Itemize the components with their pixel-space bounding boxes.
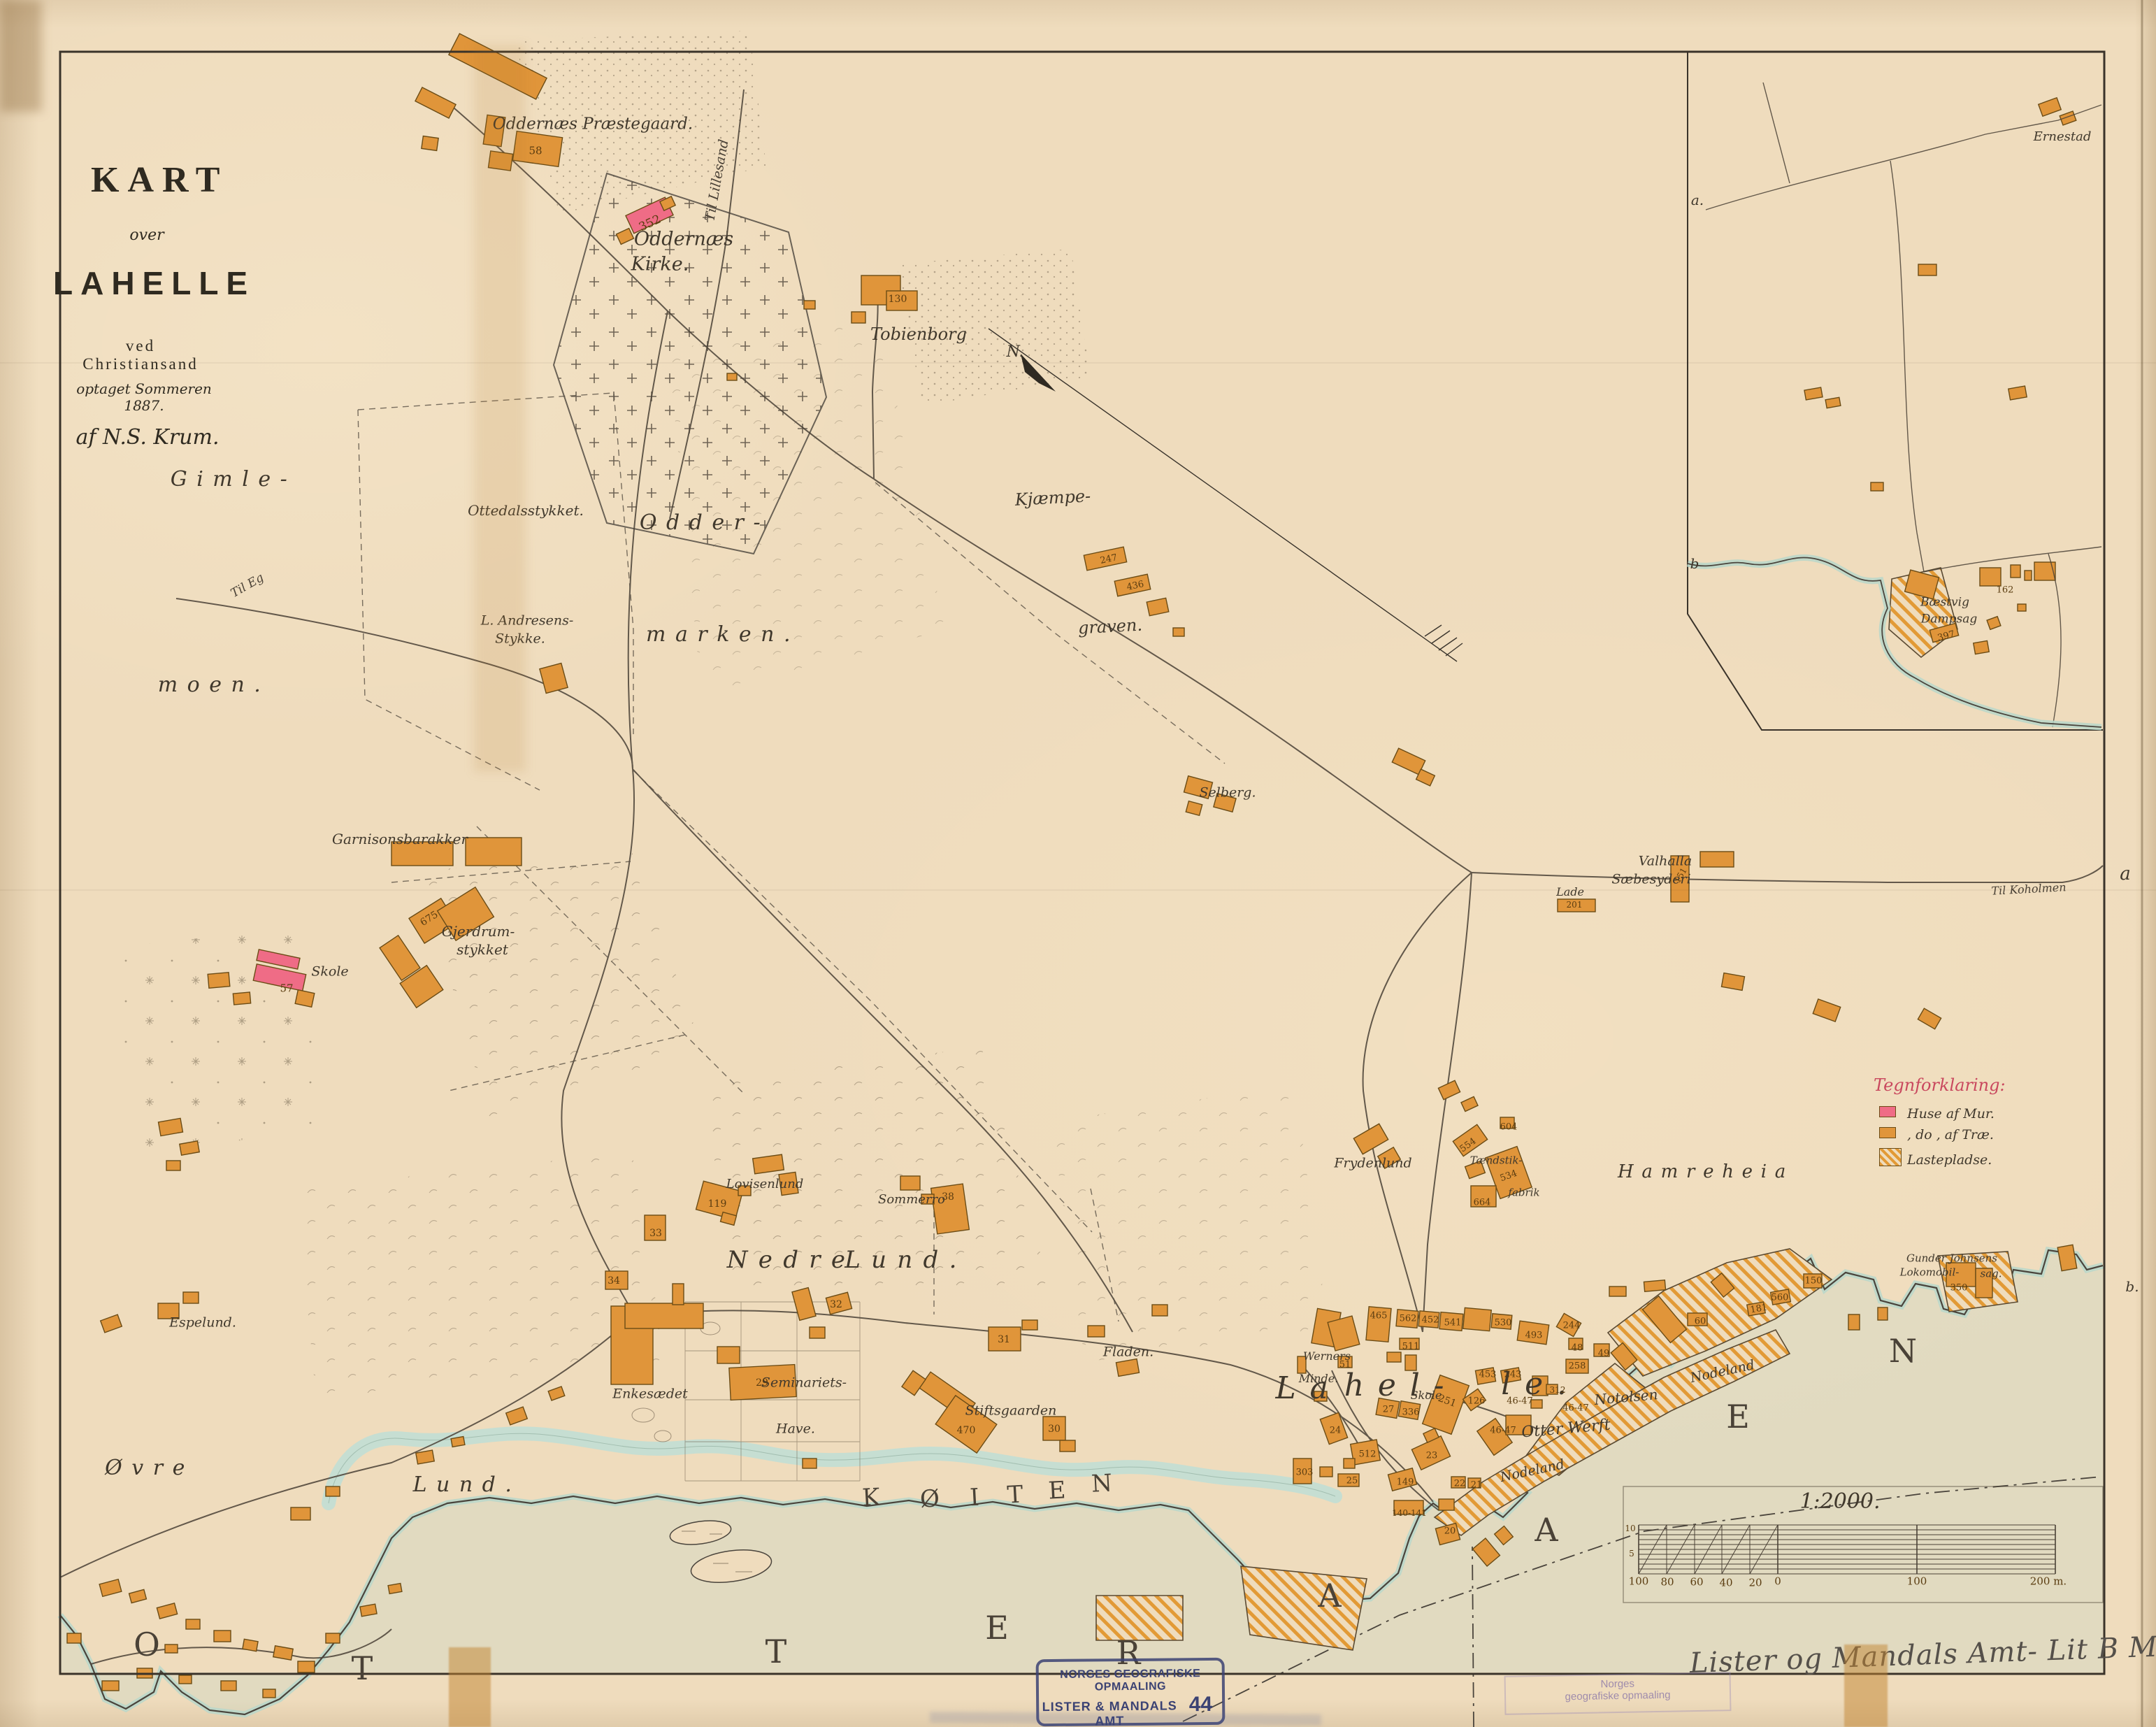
building-number: 33: [649, 1228, 662, 1238]
building-wood: [157, 1603, 177, 1619]
building-wood: [186, 1619, 200, 1629]
building-number: 560: [1771, 1294, 1789, 1303]
map-label: Tændstik-: [1470, 1156, 1523, 1166]
building-number: 100: [1907, 1577, 1927, 1587]
map-label: N.: [1007, 345, 1024, 360]
building-number: 452: [1422, 1316, 1439, 1325]
legend: Tegnforklaring: Huse af Mur. , do , af T…: [1874, 1075, 2041, 1175]
building-number: 303: [1296, 1468, 1314, 1477]
building-number: 22: [1454, 1479, 1466, 1489]
map-label: Ernestad: [2034, 131, 2092, 143]
building-wood: [2025, 571, 2032, 580]
building-wood: [1387, 1352, 1401, 1362]
building-wood: [1060, 1440, 1075, 1452]
building-wood: [851, 312, 865, 323]
building-number: 51: [1339, 1361, 1351, 1370]
map-author: af N.S. Krum.: [60, 425, 235, 450]
map-title-over: over: [105, 227, 189, 244]
map-label: E: [1726, 1400, 1750, 1433]
map-label: Oddernæs: [634, 230, 733, 249]
building-wood: [2018, 604, 2026, 611]
building-wood: [1088, 1326, 1105, 1337]
building-number: 470: [957, 1426, 976, 1435]
building-wood: [422, 136, 438, 151]
building-wood: [540, 663, 568, 693]
map-title-place: LAHELLE: [53, 264, 249, 302]
building-wood: [727, 373, 737, 380]
building-number: 664: [1474, 1198, 1491, 1208]
building-wood: [1320, 1467, 1332, 1477]
map-label: A: [1535, 1514, 1558, 1546]
building-wood: [1700, 852, 1734, 867]
building-wood: [804, 301, 815, 309]
map-label: K: [861, 1485, 880, 1510]
building-wood: [99, 1579, 122, 1597]
building-number: 29: [756, 1378, 768, 1388]
building-wood: [273, 1646, 293, 1660]
building-number: 10: [1625, 1524, 1635, 1533]
building-wood: [1439, 1499, 1454, 1510]
building-wood: [295, 990, 315, 1008]
legend-item-wood: , do , af Træ.: [1874, 1126, 2041, 1147]
building-number: 46-47: [1507, 1397, 1532, 1406]
map-label: sag.: [1980, 1269, 2002, 1280]
map-label: Frydenlund: [1334, 1157, 1411, 1170]
building-wood: [1152, 1305, 1167, 1316]
building-wood: [1825, 397, 1841, 408]
map-label: N: [1889, 1335, 1917, 1367]
building-wood: [101, 1314, 122, 1333]
building-wood: [221, 1681, 236, 1691]
legend-item-wharf: Lastepladse.: [1874, 1147, 2041, 1175]
building-number: 162: [1997, 586, 2014, 595]
building-wood: [548, 1386, 565, 1400]
building-wood: [129, 1589, 147, 1603]
building-number: 0: [1774, 1577, 1781, 1587]
building-wood: [1813, 999, 1840, 1022]
building-number: 604: [1500, 1123, 1518, 1132]
map-label: Odder-: [640, 513, 770, 533]
map-label: stykket: [457, 943, 508, 956]
building-wood: [1353, 1124, 1388, 1154]
stamp-line1: NORGES GEOGRAFISKE OPMAALING: [1039, 1668, 1222, 1694]
building-number: 130: [889, 294, 907, 304]
tape-strip: [1844, 1644, 1888, 1727]
building-number: 350: [1950, 1284, 1968, 1293]
building-number: 38: [942, 1192, 954, 1202]
building-wood: [792, 1288, 816, 1321]
building-number: 48: [1572, 1344, 1583, 1353]
map-label: Selberg.: [1199, 787, 1256, 800]
legend-item-label: Lastepladse.: [1907, 1152, 1992, 1168]
building-wood: [360, 1604, 377, 1617]
building-number: 58: [529, 146, 542, 157]
legend-item-label: , do , af Træ.: [1907, 1127, 1994, 1142]
map-subtitle: ved Christiansand: [67, 337, 214, 373]
building-wood: [298, 1661, 315, 1672]
building-wood: [625, 1303, 703, 1328]
map-label: Nedre: [727, 1248, 856, 1272]
building-number: 119: [708, 1199, 727, 1209]
building-wood: [1147, 598, 1169, 615]
building-wood: [208, 973, 230, 989]
building-wood: [1173, 628, 1184, 636]
map-label: I: [969, 1486, 979, 1510]
building-number: 200 m.: [2030, 1577, 2067, 1587]
building-wood: [1461, 1096, 1478, 1111]
map-survey-date: optaget Sommeren 1887.: [60, 380, 228, 414]
building-wood: [1871, 482, 1883, 491]
map-label: marken.: [646, 624, 800, 645]
building-wood: [1987, 617, 2001, 630]
map-label: Gimle-: [171, 469, 297, 490]
building-number: 46-47: [1490, 1426, 1516, 1435]
building-wood: [214, 1631, 231, 1642]
building-wood: [2039, 98, 2061, 116]
building-number: 40: [1719, 1578, 1732, 1589]
building-number: 530: [1495, 1319, 1512, 1328]
building-wood: [1463, 1307, 1491, 1331]
building-wood: [466, 838, 522, 866]
map-label: La: [1275, 1373, 1342, 1404]
corner-smudge: [0, 0, 42, 112]
map-label: Lund.: [845, 1248, 967, 1272]
map-label: Lovisenlund: [726, 1178, 804, 1191]
building-wood: [165, 1644, 178, 1653]
building-wood: [1918, 264, 1936, 275]
map-label: Seminariets-: [761, 1377, 847, 1390]
map-label: Lade: [1556, 887, 1584, 898]
legend-title: Tegnforklaring:: [1874, 1075, 2041, 1095]
building-wood: [102, 1681, 119, 1691]
building-number: 140-141: [1392, 1509, 1427, 1517]
building-wood: [673, 1284, 684, 1305]
building-number: 149: [1397, 1478, 1414, 1487]
faint-stamp: Norges geografiske opmaaling: [1504, 1672, 1732, 1715]
building-number: 562: [1400, 1314, 1417, 1324]
map-label: Hamreheia: [1618, 1163, 1794, 1181]
building-wood: [326, 1486, 340, 1496]
building-number: 34: [608, 1276, 620, 1286]
building-number: 258: [1569, 1362, 1586, 1371]
map-label: b.: [2125, 1280, 2139, 1294]
building-wood: [67, 1633, 81, 1643]
building-number: 57: [280, 984, 293, 994]
map-title: KART: [91, 159, 217, 201]
map-label: Ø: [919, 1486, 940, 1511]
map-label: Kjæmpe-: [1014, 487, 1091, 508]
building-wood: [2034, 562, 2055, 580]
map-label: Valhalla: [1639, 855, 1692, 868]
building-number: 20: [1444, 1527, 1456, 1536]
map-label: Tobienborg: [870, 326, 967, 343]
building-wood: [291, 1507, 310, 1520]
building-number: 31: [998, 1335, 1010, 1345]
building-number: 46-47: [1562, 1404, 1588, 1413]
fold-crease: [0, 889, 2156, 891]
map-label: Gjerdrum-: [442, 924, 515, 938]
building-wood: [1609, 1287, 1626, 1296]
map-label: Garnisonsbarakker: [332, 832, 468, 846]
building-number: 512: [1359, 1450, 1377, 1459]
map-label: Sommerro: [878, 1194, 945, 1206]
building-number: 244: [1563, 1321, 1581, 1331]
building-wood: [1186, 801, 1202, 816]
fold-crease: [0, 362, 2156, 364]
map-artwork: [0, 0, 2156, 1727]
building-wood: [1721, 973, 1744, 991]
map-label: Skole: [311, 966, 348, 979]
building-number: 60: [1695, 1317, 1706, 1326]
building-wood: [506, 1407, 528, 1425]
building-number: 25: [1346, 1477, 1358, 1486]
building-number: 465: [1370, 1312, 1388, 1321]
stone-swatch-icon: [1879, 1106, 1896, 1117]
building-number: 24: [1330, 1426, 1342, 1435]
building-number: 453: [1479, 1370, 1497, 1380]
building-wood: [2011, 565, 2020, 578]
building-wood: [1804, 387, 1823, 400]
building-wood: [1980, 568, 2001, 586]
building-wood: [243, 1639, 258, 1651]
map-label: Lund.: [413, 1475, 522, 1496]
building-wood: [1878, 1307, 1888, 1320]
legend-item-stone: Huse af Mur.: [1874, 1105, 2041, 1126]
building-wood: [717, 1347, 740, 1363]
map-label: E: [1048, 1478, 1067, 1503]
building-wood: [166, 1161, 180, 1170]
building-number: 511: [1402, 1342, 1420, 1352]
building-wood: [1918, 1008, 1941, 1029]
map-label: 1:2000.: [1799, 1491, 1880, 1512]
building-number: 23: [1426, 1452, 1438, 1461]
map-label: T: [766, 1635, 787, 1668]
building-wood: [2060, 111, 2076, 125]
building-number: 541: [1444, 1319, 1462, 1328]
building-number: 336: [1402, 1408, 1420, 1417]
map-label: Øvre: [105, 1458, 194, 1479]
building-number: 32: [830, 1300, 842, 1310]
legend-item-label: Huse af Mur.: [1907, 1106, 1995, 1122]
map-label: Espelund.: [169, 1317, 236, 1330]
building-wood: [1644, 1280, 1665, 1292]
building-wood: [451, 1437, 465, 1447]
map-sheet: KART over LAHELLE ved Christiansand opta…: [0, 0, 2156, 1727]
paper-stain: [474, 45, 526, 772]
building-wood: [902, 1370, 926, 1396]
map-label: Stiftsgaarden: [965, 1405, 1057, 1418]
map-label: Dampsag: [1921, 614, 1978, 626]
building-wood: [810, 1327, 825, 1338]
map-label: Lokomobil-: [1900, 1268, 1960, 1278]
building-wood: [803, 1459, 817, 1468]
map-label: A: [1318, 1579, 1341, 1612]
building-number: 126: [1468, 1397, 1486, 1406]
building-wood: [900, 1176, 920, 1190]
building-wood: [179, 1675, 192, 1684]
map-label: Have.: [776, 1423, 815, 1436]
map-label: a.: [1691, 193, 1704, 207]
map-label: Enkesædet: [612, 1388, 688, 1401]
building-number: 312: [1550, 1386, 1566, 1394]
building-number: 493: [1525, 1331, 1543, 1340]
building-wood: [388, 1584, 402, 1594]
building-wood: [1116, 1359, 1139, 1377]
map-label: T: [1007, 1482, 1023, 1507]
building-number: 100: [1629, 1577, 1649, 1587]
building-number: 243: [1504, 1370, 1522, 1380]
map-label: a: [2120, 865, 2131, 883]
building-wood: [263, 1689, 275, 1698]
map-label: T: [352, 1652, 373, 1684]
building-number: 201: [1567, 901, 1583, 909]
map-label: moen.: [158, 675, 271, 696]
building-wood: [183, 1292, 199, 1303]
map-label: b: [1690, 557, 1699, 571]
map-label: Gunder Johnsens: [1906, 1254, 1997, 1264]
building-number: 21: [1471, 1481, 1483, 1490]
building-wood: [415, 87, 456, 118]
building-number: 150: [1805, 1277, 1823, 1286]
building-wood: [1344, 1459, 1355, 1468]
building-number: 27: [1383, 1405, 1395, 1414]
building-wood: [1438, 1080, 1460, 1099]
map-label: E: [985, 1612, 1009, 1644]
building-number: 20: [1748, 1578, 1762, 1589]
map-label: N: [1091, 1471, 1112, 1496]
building-wood: [2008, 386, 2027, 400]
tape-strip: [449, 1647, 491, 1727]
building-number: 60: [1690, 1577, 1703, 1588]
building-wood: [326, 1633, 340, 1643]
map-label: graven.: [1077, 617, 1142, 637]
map-label: O: [134, 1628, 160, 1661]
map-label: Bæstvig: [1920, 597, 1969, 609]
building-number: 80: [1660, 1577, 1674, 1588]
building-number: 30: [1048, 1424, 1061, 1434]
building-wood: [416, 1450, 434, 1464]
map-label: fabrik: [1508, 1188, 1539, 1198]
wood-swatch-icon: [1879, 1127, 1896, 1138]
wharf-swatch-icon: [1879, 1148, 1902, 1166]
building-number: 49: [1598, 1349, 1610, 1359]
building-number: 5: [1629, 1549, 1634, 1558]
building-wood: [1022, 1320, 1037, 1330]
building-wood: [233, 992, 250, 1005]
map-label: Kirke.: [631, 255, 689, 274]
map-label: Fladen.: [1103, 1346, 1154, 1359]
building-wood: [1848, 1314, 1860, 1330]
building-wood: [1974, 640, 1989, 654]
